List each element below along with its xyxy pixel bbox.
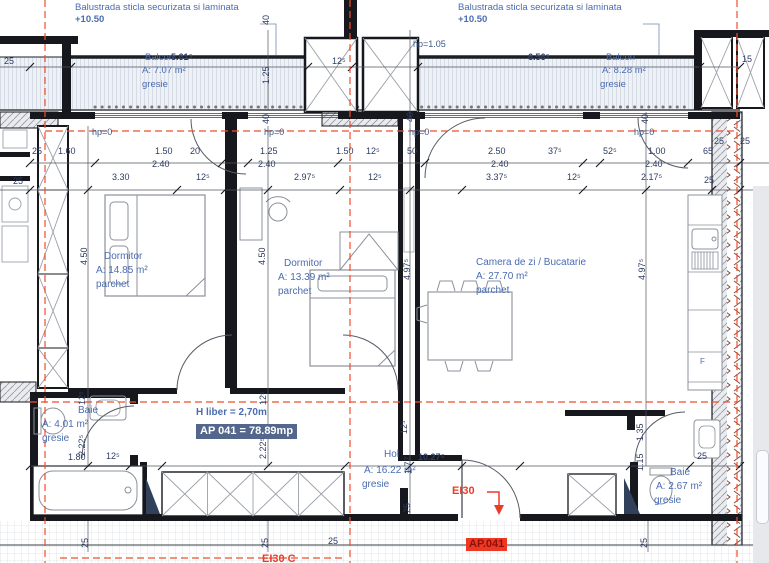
- dim-v-5: 4.50: [79, 247, 89, 265]
- dim-h3-4: 3.37⁵: [486, 172, 507, 182]
- dim-h1-8: 2.50: [488, 146, 506, 156]
- dim-v-2: 40: [261, 114, 271, 124]
- dim-v-4: 40: [640, 114, 650, 124]
- apartment-total-area: AP 041 = 78.89mp: [196, 424, 297, 439]
- dim-v-9: 12⁵: [77, 391, 87, 405]
- parapet-window-1: hp=0: [92, 127, 112, 137]
- dim-v-3: 40: [405, 112, 415, 122]
- dim-h1-2: 1.50: [155, 146, 173, 156]
- floor-plan-ap041: Balustrada sticla securizata si laminata…: [0, 0, 769, 563]
- dim-v-20: 25: [260, 538, 270, 548]
- balcony-right-name: Balcon: [606, 53, 635, 64]
- dim-top-4: 25: [740, 136, 750, 146]
- dim-v-8: 4.97⁵: [637, 259, 647, 280]
- fire-door-arrow: [487, 492, 504, 515]
- room-hol-name: Hol: [384, 449, 399, 461]
- dim-b-2: 25: [697, 451, 707, 461]
- dim-v-19: 25: [80, 538, 90, 548]
- room-living-finish: parchet: [476, 285, 509, 297]
- apartment-badge: AP.041: [466, 538, 507, 551]
- dim-h1-5: 1.50: [336, 146, 354, 156]
- insulation-strip: [727, 112, 740, 545]
- dim-h3-1: 12⁵: [196, 172, 210, 182]
- room-baie2-name: Baie: [670, 467, 690, 479]
- balcony-left-length: 5.61⁵: [171, 52, 193, 62]
- dim-h3-6: 2.17⁵: [641, 172, 662, 182]
- scrollbar-thumb[interactable]: [756, 450, 769, 524]
- duct-wedge-left: [146, 478, 160, 514]
- dim-h2-0: 2.40: [152, 159, 170, 169]
- dim-v-12: 2.22⁵: [258, 438, 268, 459]
- dim-v-14: 1.77: [403, 456, 413, 474]
- room-baie2-finish: gresie: [654, 495, 681, 507]
- dim-h3-5: 12⁵: [567, 172, 581, 182]
- parapet-window-4: hp=0: [634, 127, 654, 137]
- dim-top-1: 12⁵: [332, 56, 346, 66]
- dim-h1-12: 65: [703, 146, 713, 156]
- dim-h2-1: 2.40: [258, 159, 276, 169]
- room-hol-finish: gresie: [362, 479, 389, 491]
- dim-b-1: 12⁵: [106, 451, 120, 461]
- room-living-name: Camera de zi / Bucatarie: [476, 257, 586, 269]
- room-living-area: A: 27.70 m²: [476, 271, 528, 283]
- dim-v-15: 25: [402, 503, 412, 513]
- room-dormitor2-finish: parchet: [278, 286, 311, 298]
- dim-h1-7: 50: [407, 146, 417, 156]
- dim-h1-11: 1.00: [648, 146, 666, 156]
- dim-h1-1: 1.60: [58, 146, 76, 156]
- dim-h2-3: 2.40: [645, 159, 663, 169]
- dim-b-3: 25: [328, 536, 338, 546]
- dim-v-11: 12⁵: [258, 391, 268, 405]
- dim-v-0: 40: [261, 15, 271, 25]
- dim-misc-0: 25: [13, 176, 23, 186]
- balcony-left-area: A: 7.07 m²: [142, 66, 186, 77]
- dim-b-0: 1.80: [68, 452, 86, 462]
- shower-box: [568, 474, 616, 516]
- room-baie2-area: A: 2.67 m²: [656, 481, 702, 493]
- parapet-window-2: hp=0: [264, 127, 284, 137]
- dim-h1-6: 12⁵: [366, 146, 380, 156]
- dim-v-6: 4.50: [257, 247, 267, 265]
- fire-rating-clipped: EI30 C: [262, 553, 296, 563]
- parapet-window-3: hp=0: [409, 127, 429, 137]
- room-dormitor1-name: Dormitor: [104, 251, 142, 263]
- kitchen-counter: [688, 195, 722, 390]
- dim-h1-9: 37⁵: [548, 146, 562, 156]
- balcony-left-finish: gresie: [142, 80, 168, 91]
- dim-h1-3: 20: [190, 146, 200, 156]
- wardrobe: [162, 472, 344, 516]
- dim-top-0: 25: [4, 56, 14, 66]
- balustrade-right-note: Balustrada sticla securizata si laminata: [458, 3, 622, 14]
- balcony-left-name: Balcon: [145, 53, 174, 64]
- dim-h2-2: 2.40: [491, 159, 509, 169]
- room-hol-length: 10.27⁵: [418, 452, 445, 462]
- dim-h3-7: 25: [704, 175, 714, 185]
- room-baie1-area: A: 4.01 m²: [42, 419, 88, 431]
- ceiling-height-label: H liber = 2,70m: [196, 407, 267, 419]
- dim-h1-4: 1.25: [260, 146, 278, 156]
- dim-h3-0: 3.30: [112, 172, 130, 182]
- room-dormitor1-finish: parchet: [96, 279, 129, 291]
- wall-shaft-inner: [404, 188, 414, 252]
- balcony-right-area: A: 8.28 m²: [602, 66, 646, 77]
- dim-v-16: 1.35: [635, 423, 645, 441]
- room-dormitor2-area: A: 13.39 m²: [278, 272, 330, 284]
- dim-h1-10: 52⁵: [603, 146, 617, 156]
- dim-v-13: 12⁵: [399, 420, 409, 434]
- dim-h3-3: 12⁵: [368, 172, 382, 182]
- fire-rating-label: EI30: [452, 485, 475, 498]
- dim-v-1: 1.25: [261, 66, 271, 84]
- dim-h3-2: 2.97⁵: [294, 172, 315, 182]
- balustrade-right-level: +10.50: [458, 15, 487, 26]
- left-wall: [0, 126, 68, 521]
- fridge-label: F: [700, 357, 705, 366]
- balcony-right-finish: gresie: [600, 80, 626, 91]
- room-baie1-finish: gresie: [42, 433, 69, 445]
- dim-v-18: 25: [639, 538, 649, 548]
- dim-v-7: 4.97⁵: [402, 259, 412, 280]
- parapet-balcony-label: hp=1.05: [413, 39, 446, 49]
- corridor-grid: [0, 521, 769, 563]
- dim-top-3: 25: [714, 136, 724, 146]
- balustrade-left-note: Balustrada sticla securizata si laminata: [75, 3, 239, 14]
- dim-h1-0: 25: [32, 146, 42, 156]
- neighbour-fixtures: [2, 130, 28, 262]
- room-dormitor2-name: Dormitor: [284, 258, 322, 270]
- room-baie1-name: Baie: [78, 405, 98, 417]
- balcony-right-length: 6.56⁵: [528, 52, 550, 62]
- dim-top-2: 15: [742, 54, 752, 64]
- balustrade-left-level: +10.50: [75, 15, 104, 26]
- room-dormitor1-area: A: 14.85 m²: [96, 265, 148, 277]
- dim-v-17: 1.15: [635, 453, 645, 471]
